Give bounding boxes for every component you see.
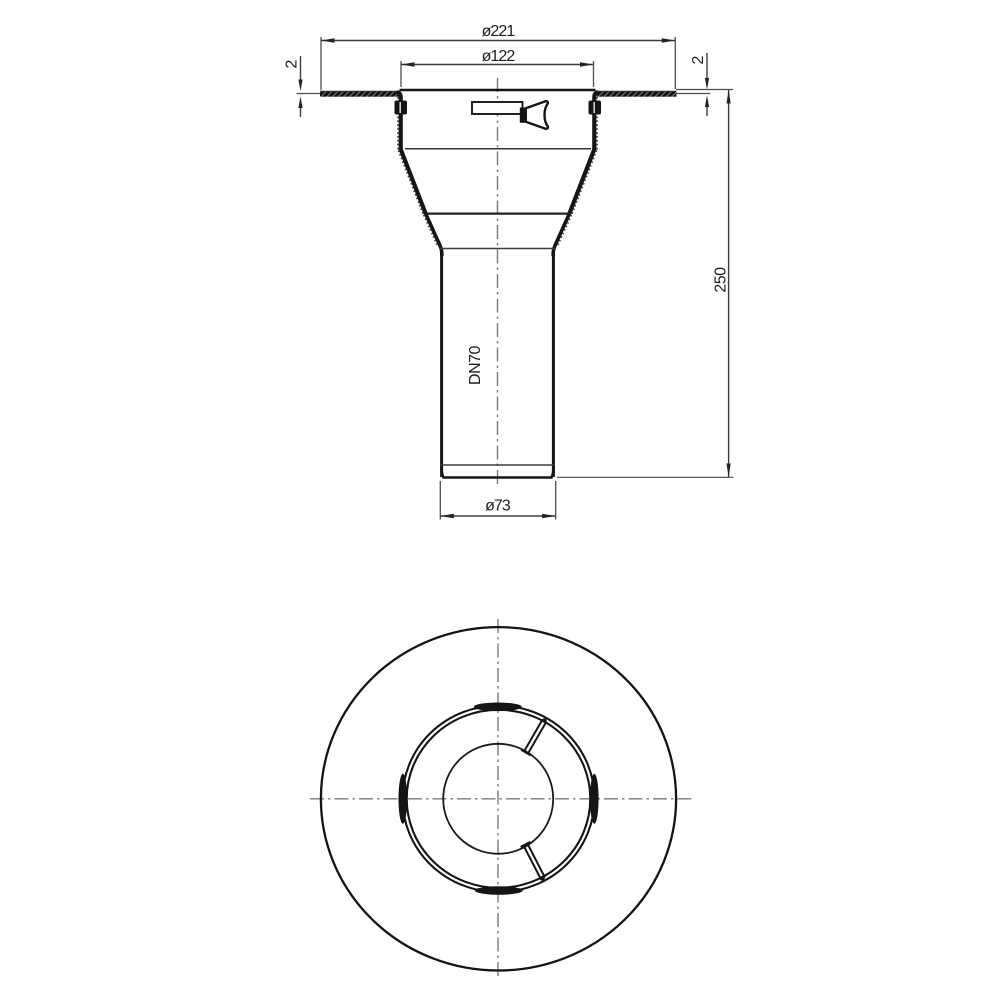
- svg-text:ø221: ø221: [482, 23, 516, 40]
- svg-text:250: 250: [713, 267, 730, 293]
- svg-text:2: 2: [284, 59, 301, 68]
- svg-text:ø122: ø122: [482, 48, 516, 65]
- svg-text:ø73: ø73: [485, 498, 511, 515]
- svg-text:2: 2: [690, 55, 707, 64]
- svg-text:DN70: DN70: [467, 345, 484, 385]
